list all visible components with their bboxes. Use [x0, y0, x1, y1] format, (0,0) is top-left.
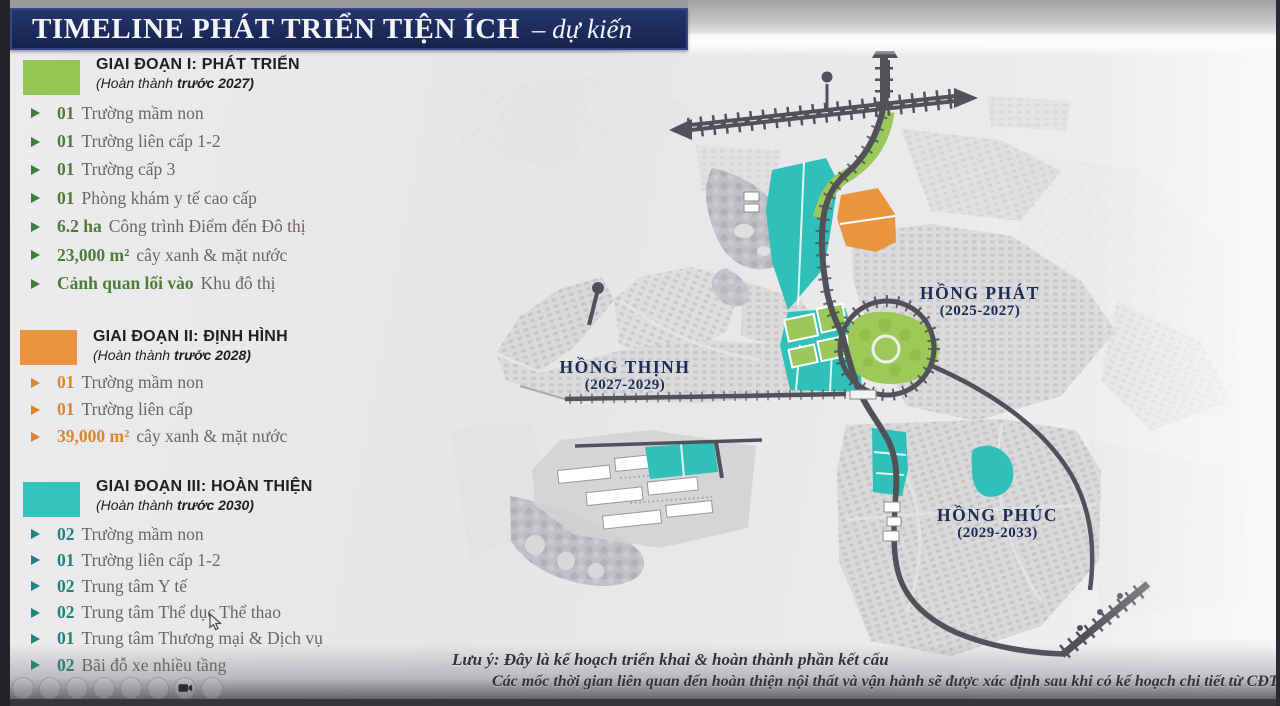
phase1-title: GIAI ĐOẠN I: PHÁT TRIỂN [96, 56, 300, 74]
bullet-arrow-icon [31, 222, 40, 232]
area-label-hong-phuc: HỒNG PHÚC (2029-2033) [915, 506, 1080, 542]
footnote-line1: Lưu ý: Đây là kế hoạch triển khai & hoàn… [452, 650, 889, 670]
legend-item: 02Trung tâm Thể dục Thể thao [18, 600, 378, 626]
area-label-hong-thinh: HỒNG THỊNH (2027-2029) [545, 358, 705, 394]
bullet-arrow-icon [31, 165, 40, 175]
phase2-orange-zone [837, 188, 896, 252]
right-wash [1086, 40, 1276, 640]
toolbar-circle-icon[interactable] [12, 677, 34, 699]
mouse-cursor [209, 613, 223, 631]
slide-title-bar: TIMELINE PHÁT TRIỂN TIỆN ÍCH – dự kiến [10, 8, 688, 50]
toolbar-circle-icon[interactable] [93, 677, 115, 699]
highway-top [669, 88, 978, 140]
legend-item: 6.2 haCông trình Điểm đến Đô thị [18, 213, 378, 241]
legend-item: 02Trường mầm non [18, 521, 378, 547]
bullet-arrow-icon [31, 108, 40, 118]
bullet-arrow-icon [31, 137, 40, 147]
camera-icon[interactable] [174, 677, 196, 699]
phase2-color-swatch [20, 330, 77, 365]
legend-item: 23,000 m²cây xanh & mặt nước [18, 241, 378, 269]
left-edge [0, 0, 10, 706]
legend-item: 01Trường liên cấp 1-2 [18, 127, 378, 155]
page-title: TIMELINE PHÁT TRIỂN TIỆN ÍCH [32, 13, 520, 46]
bullet-arrow-icon [31, 581, 40, 591]
page-title-suffix: – dự kiến [532, 14, 632, 45]
water-tower-icon [822, 72, 833, 113]
phase1-color-swatch [23, 60, 80, 95]
bullet-arrow-icon [31, 432, 40, 442]
entry-road-north [872, 51, 898, 106]
toolbar-circle-icon[interactable] [201, 677, 223, 699]
phase1-completion: (Hoàn thành trước 2027) [96, 75, 300, 91]
phase3-color-swatch [23, 482, 80, 517]
phase2-completion: (Hoàn thành trước 2028) [93, 347, 288, 363]
bullet-arrow-icon [31, 634, 40, 644]
legend-item: 01Trường liên cấp [18, 396, 378, 423]
bullet-arrow-icon [31, 555, 40, 565]
bullet-arrow-icon [31, 378, 40, 388]
phase2-title: GIAI ĐOẠN II: ĐỊNH HÌNH [93, 328, 288, 346]
toolbar-circle-icon[interactable] [39, 677, 61, 699]
legend-item: 01Trường mầm non [18, 99, 378, 127]
legend-item: 01Trường liên cấp 1-2 [18, 547, 378, 573]
legend-item: 01Trường mầm non [18, 369, 378, 396]
bullet-arrow-icon [31, 405, 40, 415]
phase1-section: GIAI ĐOẠN I: PHÁT TRIỂN (Hoàn thành trướ… [18, 56, 378, 298]
legend-item: 39,000 m²cây xanh & mặt nước [18, 423, 378, 450]
toolbar-circle-icon[interactable] [120, 677, 142, 699]
overlay-toolbar [12, 677, 228, 699]
bullet-arrow-icon [31, 608, 40, 618]
right-edge [1276, 0, 1280, 706]
toolbar-circle-icon[interactable] [147, 677, 169, 699]
area-label-hong-phat: HỒNG PHÁT (2025-2027) [900, 284, 1060, 320]
phase3-title: GIAI ĐOẠN III: HOÀN THIỆN [96, 478, 313, 496]
top-edge [10, 0, 688, 8]
bullet-arrow-icon [31, 529, 40, 539]
phase3-completion: (Hoàn thành trước 2030) [96, 497, 313, 513]
legend-item: 02Trung tâm Y tế [18, 573, 378, 599]
footnote-line2: Các mốc thời gian liên quan đến hoàn thi… [492, 673, 1279, 691]
bullet-arrow-icon [31, 193, 40, 203]
legend-item: Cảnh quan lối vàoKhu đô thị [18, 269, 378, 297]
legend-item: 01Trường cấp 3 [18, 156, 378, 184]
phase2-section: GIAI ĐOẠN II: ĐỊNH HÌNH (Hoàn thành trướ… [18, 328, 378, 450]
bullet-arrow-icon [31, 279, 40, 289]
bullet-arrow-icon [31, 250, 40, 260]
legend-item: 01Phòng khám y tế cao cấp [18, 184, 378, 212]
toolbar-circle-icon[interactable] [66, 677, 88, 699]
bottom-edge [0, 699, 1280, 706]
